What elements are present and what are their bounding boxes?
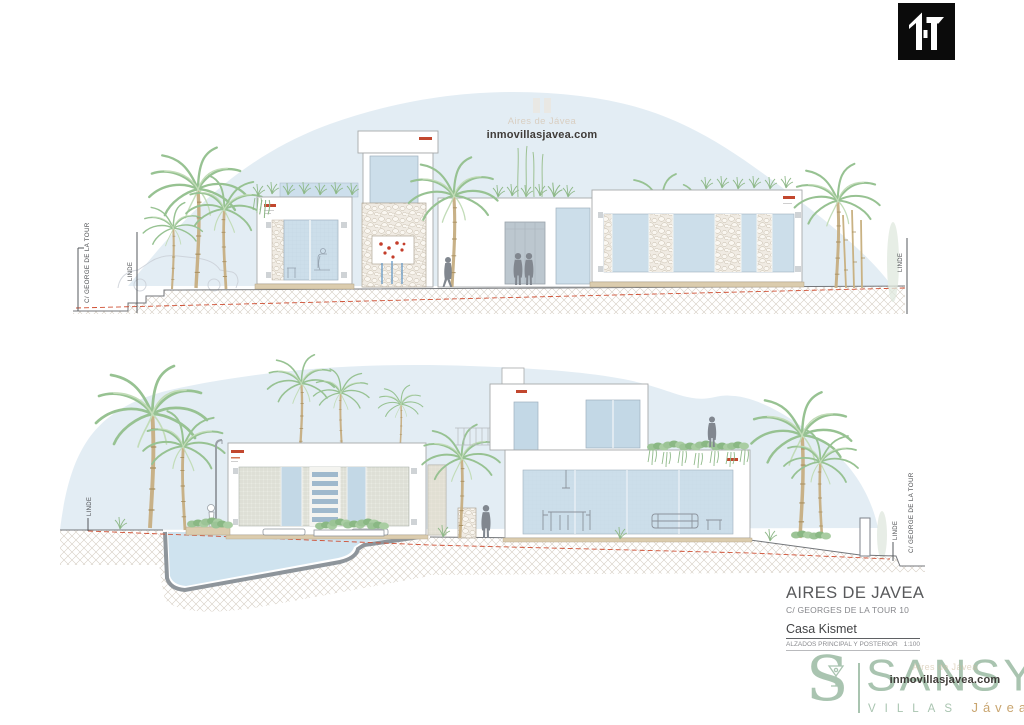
title-block: AIRES DE JAVEA C/ GEORGES DE LA TOUR 10 … — [786, 584, 927, 651]
watermark-brand: Aires de Jávea — [860, 662, 1024, 672]
building-left — [253, 182, 359, 289]
watermark-site: inmovillasjavea.com — [452, 129, 632, 141]
boundary-label: LINDE — [898, 253, 904, 272]
watermark-brand: Aires de Jávea — [452, 116, 632, 127]
inmovillas-corner-logo — [898, 3, 955, 60]
drawing-tag-red — [783, 196, 795, 199]
drawing-tag-red — [419, 137, 432, 140]
street-label: C/ GEORGE DE LA TOUR — [84, 222, 91, 303]
boundary-label: LINDE — [893, 521, 899, 540]
inmovillas-mark-icon — [898, 3, 955, 60]
watermark-logo-icon — [452, 98, 632, 113]
project-title: AIRES DE JAVEA — [786, 584, 927, 603]
drawing-tag-red — [231, 450, 244, 453]
martini-glass-icon — [826, 664, 846, 690]
brand-tagline-villas: VILLAS — [868, 703, 961, 715]
drawing-tag-red — [727, 458, 738, 461]
drawing-tag-red — [516, 390, 527, 393]
brand-tagline-javea: Jávea — [971, 700, 1024, 715]
ground-section — [73, 286, 905, 314]
project-address: C/ GEORGES DE LA TOUR 10 — [786, 605, 927, 615]
drawing-scale: 1:100 — [904, 641, 920, 648]
bottom-elevation: LINDE LINDE C/ GEORGE DE LA TOUR — [60, 355, 925, 612]
street-label: C/ GEORGE DE LA TOUR — [908, 472, 915, 553]
watermark-site: inmovillasjavea.com — [860, 674, 1024, 686]
center-watermark: Aires de Jávea inmovillasjavea.com — [452, 98, 632, 141]
building-tower — [358, 131, 438, 287]
house-name: Casa Kismet — [786, 622, 920, 639]
shrub — [809, 532, 831, 540]
architectural-sheet: { "watermarks": { "center": {"brand": "A… — [0, 0, 1024, 725]
boundary-label: LINDE — [128, 262, 134, 281]
bottom-watermark: Aires de Jávea inmovillasjavea.com — [860, 662, 1024, 686]
cypress-tree — [877, 511, 887, 559]
building-right — [590, 176, 804, 287]
marker-post — [860, 518, 870, 556]
building-bottom-right — [490, 368, 752, 542]
grass-tuft — [765, 529, 777, 541]
boundary-label: LINDE — [87, 497, 93, 516]
